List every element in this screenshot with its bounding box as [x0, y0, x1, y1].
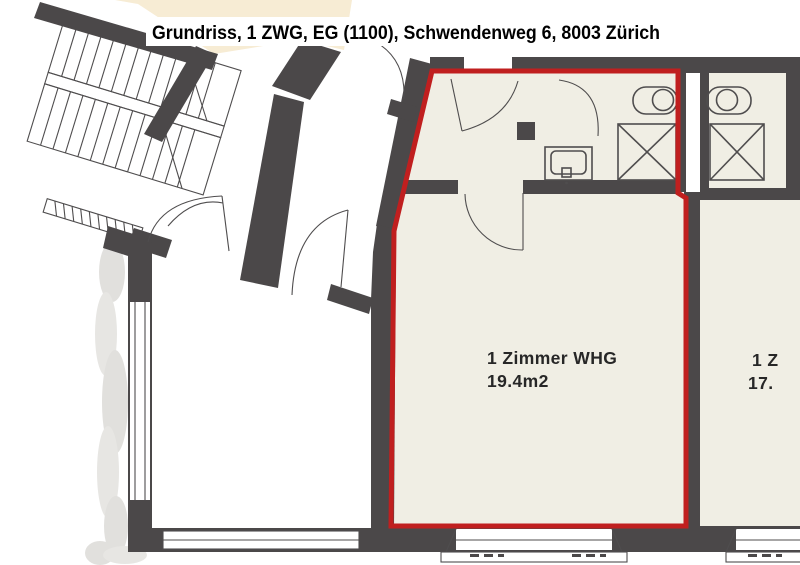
wall-hall-divider	[240, 94, 304, 288]
floor-plan: 1 Zimmer WHG 19.4m2 1 Z 17. Grundriss, 1…	[0, 0, 800, 565]
window-sill	[441, 552, 627, 562]
door-arc-hall-mid	[292, 210, 348, 295]
plan-title: Grundriss, 1 ZWG, EG (1100), Schwendenwe…	[152, 23, 660, 44]
adjacent-unit-label: 1 Z	[752, 350, 779, 370]
door-arc-hall-top	[372, 40, 404, 99]
wall-bath-stub	[517, 122, 535, 140]
door-arc-stairs	[168, 202, 223, 226]
window-top	[464, 57, 512, 69]
door-arc-left-room	[148, 196, 222, 242]
highlighted-unit-floor	[391, 71, 686, 526]
wall-stub-hall	[327, 284, 373, 314]
wall-bath-right	[700, 73, 709, 192]
wall-rightbath-bottom	[700, 188, 790, 200]
floor-plan-page: 1 Zimmer WHG 19.4m2 1 Z 17. Grundriss, 1…	[0, 0, 800, 565]
wall-hall-room-right	[523, 180, 676, 194]
window-left-wall	[130, 302, 150, 500]
adjacent-unit-area: 17.	[748, 373, 774, 393]
wall-stair-side	[144, 46, 214, 142]
title-bar: Grundriss, 1 ZWG, EG (1100), Schwendenwe…	[146, 17, 668, 46]
wall-corner-upper	[272, 40, 341, 100]
unit-area: 19.4m2	[487, 371, 549, 391]
unit-label: 1 Zimmer WHG	[487, 348, 617, 368]
wall-bath-outer-right	[786, 57, 800, 200]
wall-hall-room-left	[400, 180, 458, 194]
